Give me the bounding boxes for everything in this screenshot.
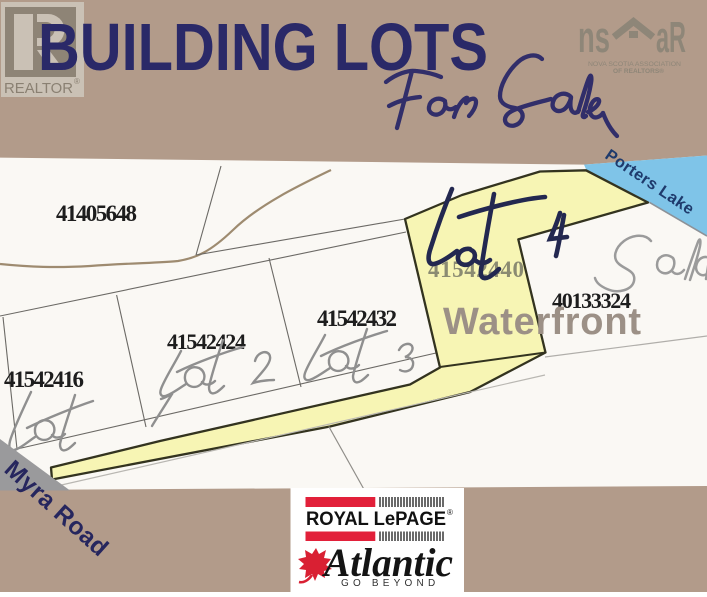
- svg-text:®: ®: [447, 508, 453, 517]
- svg-text:41542432: 41542432: [317, 306, 397, 331]
- svg-text:ROYAL LePAGE: ROYAL LePAGE: [306, 508, 446, 530]
- svg-text:aR: aR: [656, 13, 686, 62]
- svg-text:GO BEYOND: GO BEYOND: [341, 578, 439, 589]
- svg-text:OF REALTORS®: OF REALTORS®: [613, 67, 664, 75]
- svg-text:41542416: 41542416: [4, 367, 84, 392]
- svg-text:ns: ns: [578, 13, 610, 62]
- svg-text:BUILDING LOTS: BUILDING LOTS: [38, 10, 488, 85]
- svg-text:Waterfront: Waterfront: [443, 301, 641, 343]
- svg-text:41405648: 41405648: [56, 201, 137, 226]
- svg-text:NOVA SCOTIA ASSOCIATION: NOVA SCOTIA ASSOCIATION: [588, 61, 681, 68]
